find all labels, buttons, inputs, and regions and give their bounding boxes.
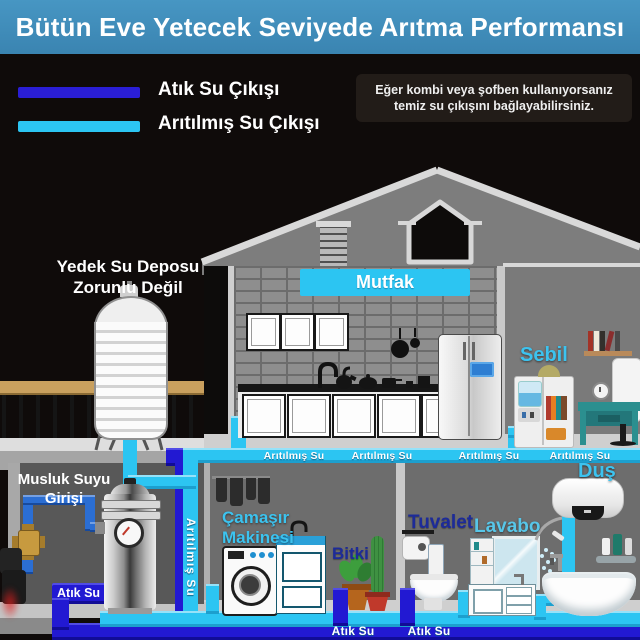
washer-knob [268,552,274,558]
vanity-drawer [506,605,532,614]
toiletry-shelf [596,556,636,563]
book-icon [588,331,593,351]
legend-waste-color-bar [18,87,140,98]
cactus-pot [365,592,390,597]
legend-purified-color-bar [18,121,140,132]
vanity-drawer [506,596,532,605]
purifier-base [108,608,152,614]
vanity-drawer [506,587,532,596]
kitchen-label: Mutfak [300,269,470,296]
tap-inlet-label-line1: Musluk Suyu [12,470,116,489]
note-box: Eğer kombi veya şofben kullanıyorsanız t… [356,74,632,122]
washer-display [228,551,244,559]
wall-shelf [584,351,632,356]
toiletry-item [482,556,487,564]
dispenser-label: Sebil [520,344,568,367]
washing-machine-label-line1: Çamaşır [222,508,322,528]
waste-label-left: Atık Su [57,586,100,600]
desk-leg [632,411,638,445]
washer-drum [239,574,261,596]
pump-red-glow [0,586,20,620]
refrigerator-door-split [468,336,470,436]
toiletry-bottle-icon [613,534,622,555]
laundry-sink-door [282,552,322,582]
refrigerator-handle [463,342,466,360]
water-jug-icon [518,381,542,407]
upper-cabinet [280,313,315,351]
backup-tank-label-line1: Yedek Su Deposu [30,256,226,277]
cabinet-door [287,394,331,438]
toilet-base [424,598,442,610]
hanging-clothes-icon [216,478,227,502]
shelf-books-icon [546,396,567,420]
plant-drain-stub [333,588,348,626]
legend-waste-label: Atık Su Çıkışı [158,79,279,101]
washer-knob [250,552,256,558]
tap-inlet-label-line2: Girişi [12,489,116,508]
cabinet-door [332,394,376,438]
page-title: Bütün Eve Yetecek Seviyede Arıtma Perfor… [16,12,625,43]
cabinet-door [377,394,421,438]
basement-floor-edge [0,618,60,634]
hanging-clothes-icon [230,478,243,506]
book-icon [615,331,620,351]
waste-label-bottom: Atık Su [318,624,388,638]
toilet-drain-stub [400,588,415,626]
backup-tank-label-line2: Zorunlu Değil [30,277,226,298]
toilet-paper-core [418,543,426,551]
purified-pipe-label: Arıtılmış Su [453,450,525,462]
laundry-sink-drawer [282,586,322,608]
shelf-items [546,428,566,440]
toiletry-bottle-icon [625,538,632,555]
vanity-door [473,589,503,614]
shower-label: Duş [578,460,616,483]
cactus-pot [367,597,388,611]
purified-vertical-pipe-label: Arıtılmış Su [183,498,198,616]
chimney-cap [316,221,351,227]
book-icon [594,331,599,351]
upper-cabinet [314,313,349,351]
purifier-inlet-stub [95,522,105,534]
dispenser-shelf-divider [542,377,544,445]
washer-supply-stub [206,584,219,614]
plant-label: Bitki [332,544,369,564]
water-tank-body [94,322,168,440]
refrigerator-icon [438,334,502,440]
hanging-clothes-icon [258,478,270,504]
tub-faucet-icon [558,554,562,571]
desk [578,402,640,411]
washer-knob [259,552,265,558]
chimney-icon [320,226,347,266]
roof-soffit-line [503,263,640,267]
toiletry-item [474,542,479,550]
tap-inlet-label: Musluk Suyu Girişi [12,470,116,508]
purified-pipe-label: Arıtılmış Su [346,450,418,462]
office-chair-base [610,441,636,446]
heater-outlet [572,506,604,520]
backup-tank-label: Yedek Su Deposu Zorunlu Değil [30,256,226,298]
waste-label-bottom: Atık Su [394,624,464,638]
purified-pipe-label: Arıtılmış Su [258,450,330,462]
legend-purified-label: Arıtılmış Su Çıkışı [158,113,320,135]
washing-machine-label-line2: Makinesi [222,528,322,548]
pressure-gauge-icon [114,518,144,548]
infographic-canvas: { "banner": { "title": "Bütün Eve Yetece… [0,0,640,640]
dispenser-tap [522,412,526,418]
hanging-clothes-icon [246,478,256,500]
tub-faucet-spout [550,558,554,565]
cactus-icon [371,536,384,594]
dispenser-tap [530,412,534,418]
refrigerator-display [470,362,494,377]
wall-clock-icon [592,382,610,400]
washing-machine-label: Çamaşır Makinesi [222,508,322,548]
desk-leg [580,411,586,445]
kitchen-utensils-icons [330,368,450,390]
vanity-faucet-icon [521,574,524,585]
cabinet-door [242,394,286,438]
upper-cabinet [246,313,281,351]
desk-drawer-plate [598,415,620,422]
toiletry-bottle-icon [602,538,610,555]
sink-label: Lavabo [474,516,541,538]
title-banner: Bütün Eve Yetecek Seviyede Arıtma Perfor… [0,0,640,54]
hanging-pan-icon [388,328,424,364]
toilet-label: Tuvalet [408,512,473,534]
heater-display [584,510,591,513]
refrigerator-handle [472,342,475,360]
waste-elbow-pipe [52,598,69,630]
